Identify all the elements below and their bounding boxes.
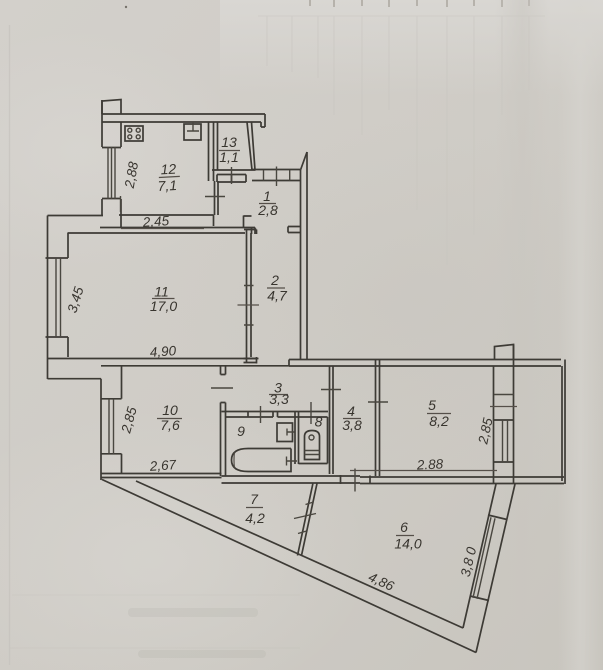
svg-text:12: 12 (160, 161, 177, 178)
svg-text:7,6: 7,6 (160, 417, 180, 433)
svg-text:6: 6 (400, 519, 408, 535)
svg-text:14,0: 14,0 (394, 536, 421, 552)
svg-text:2,67: 2,67 (148, 457, 177, 474)
svg-text:8,2: 8,2 (429, 413, 449, 429)
svg-text:7: 7 (250, 491, 259, 507)
svg-text:4,7: 4,7 (267, 288, 288, 304)
svg-text:10: 10 (162, 402, 178, 418)
svg-text:2,45: 2,45 (141, 213, 170, 230)
svg-text:3,3: 3,3 (269, 391, 289, 407)
svg-text:5: 5 (428, 397, 436, 413)
svg-text:4,2: 4,2 (245, 510, 265, 526)
svg-text:2: 2 (270, 272, 279, 288)
svg-text:17,0: 17,0 (150, 298, 177, 314)
svg-text:3,8: 3,8 (342, 417, 362, 433)
svg-text:13: 13 (221, 134, 237, 150)
svg-text:4,90: 4,90 (149, 343, 177, 360)
svg-text:9: 9 (237, 423, 245, 439)
svg-text:7,1: 7,1 (157, 177, 177, 194)
svg-text:1,1: 1,1 (219, 149, 238, 165)
svg-text:8: 8 (315, 414, 323, 430)
svg-text:2,8: 2,8 (257, 202, 278, 218)
